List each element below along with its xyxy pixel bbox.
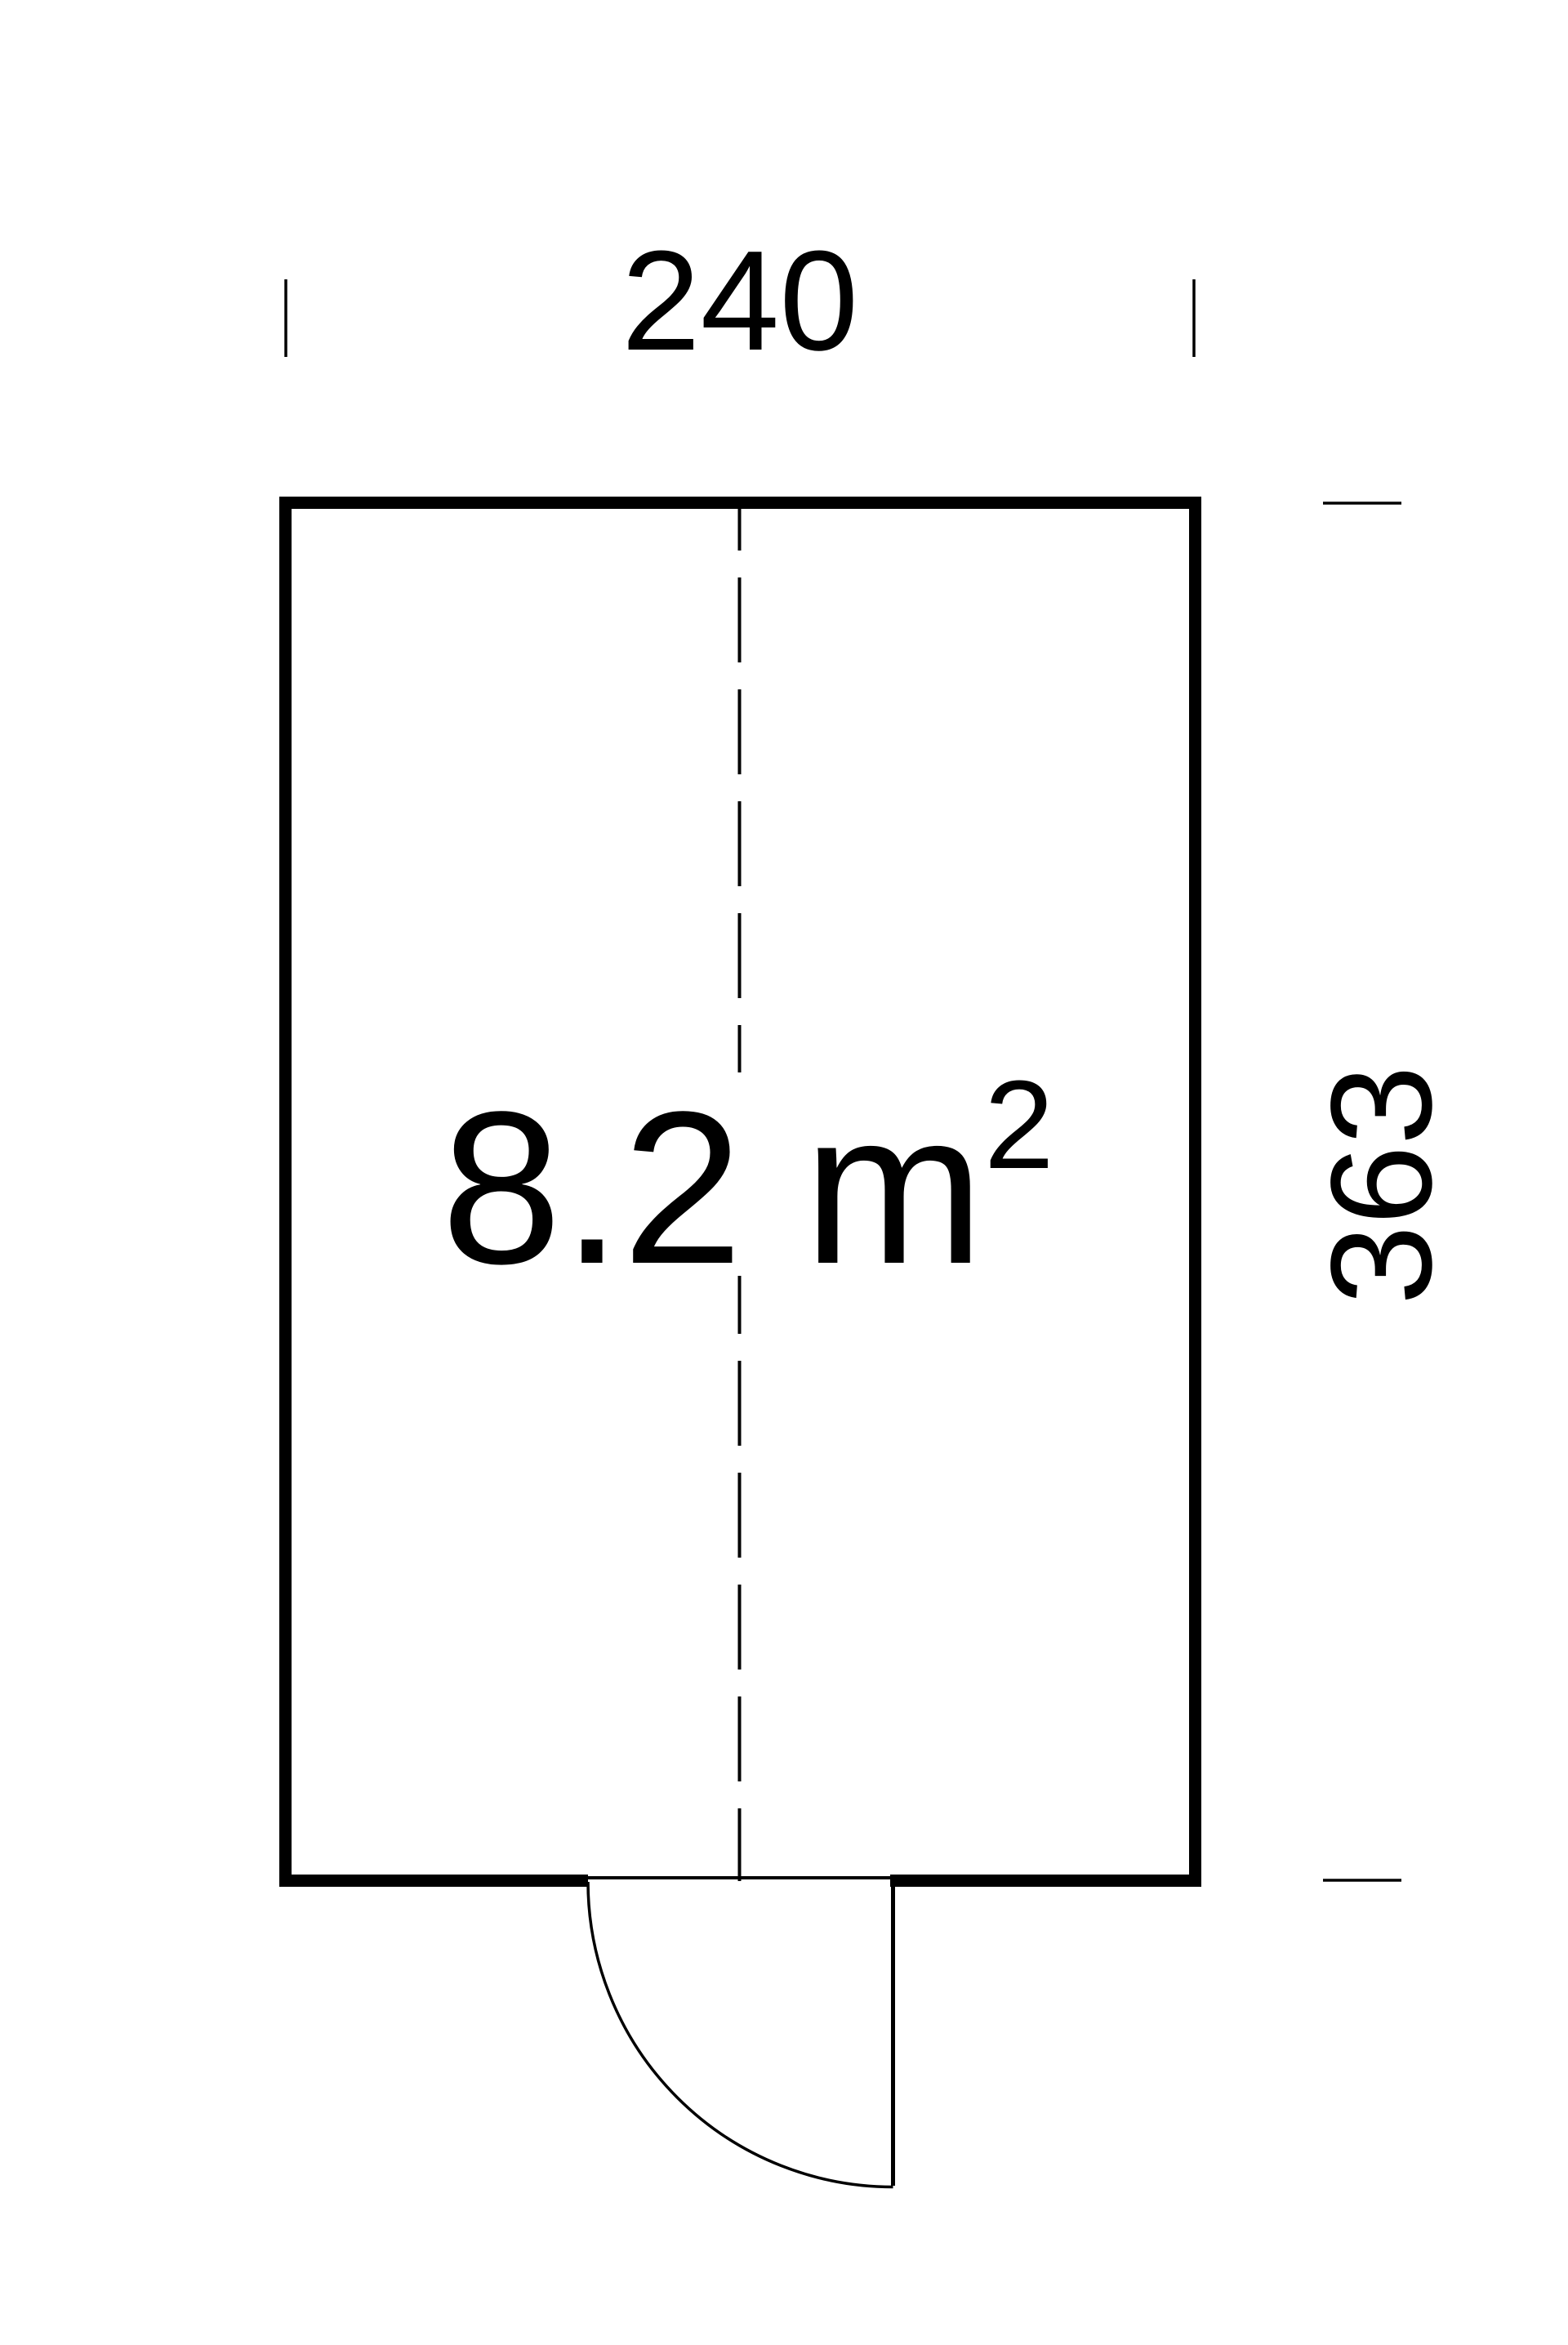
svg-text:363: 363 <box>1302 1065 1462 1305</box>
svg-text:2: 2 <box>984 1054 1054 1195</box>
svg-text:8.2 m: 8.2 m <box>441 1067 984 1309</box>
svg-text:240: 240 <box>621 221 858 380</box>
